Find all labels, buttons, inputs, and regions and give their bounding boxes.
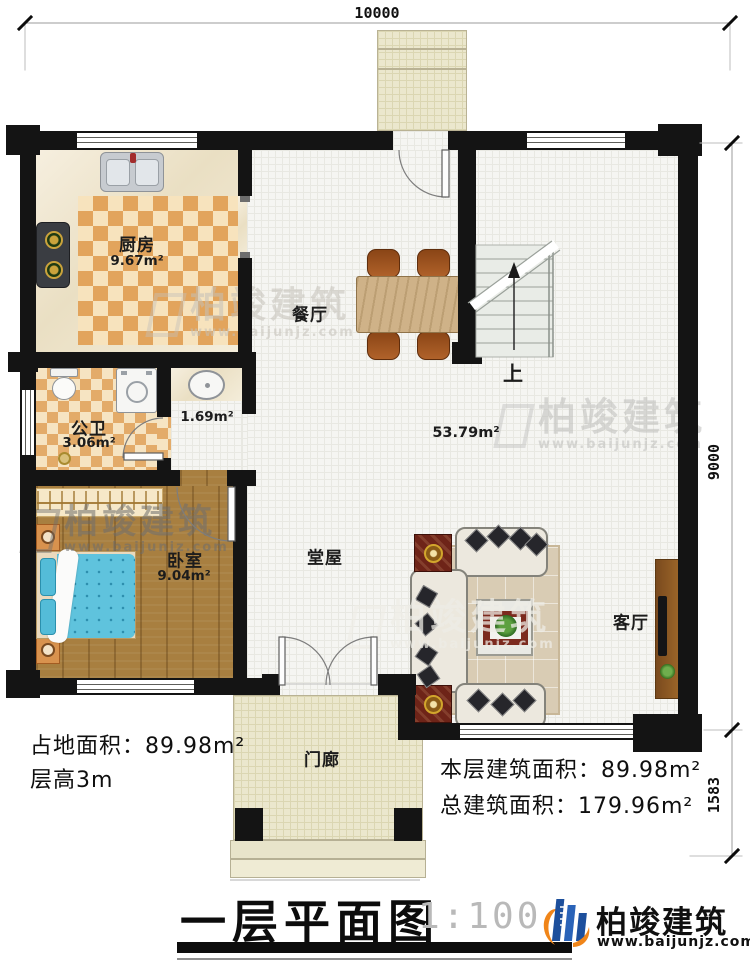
bedroom-area: 9.04m² — [157, 568, 210, 584]
site-area-note: 占地面积：89.98m² — [30, 728, 245, 760]
porch-label: 门廊 — [304, 746, 340, 771]
floor-plan-canvas: 10000 9000 1583 — [0, 0, 750, 967]
bathroom-area: 3.06m² — [62, 435, 115, 451]
kitchen-area: 9.67m² — [110, 253, 163, 269]
dimension-right-main-label: 9000 — [705, 444, 723, 480]
total-area-note: 总建筑面积：179.96m² — [440, 788, 693, 820]
title-underline-thick — [177, 942, 572, 953]
vanity-area: 1.69m² — [180, 409, 233, 425]
drawing-scale: 1:100 — [418, 896, 541, 937]
floor-height-note: 层高3m — [30, 762, 113, 794]
door-swings — [123, 150, 449, 685]
living-label: 客厅 — [613, 609, 649, 634]
linework-layer — [0, 0, 750, 967]
staircase — [468, 241, 560, 357]
title-top-rule — [230, 879, 420, 881]
brand-website: www.baijunjz.com — [597, 934, 750, 950]
hall-label: 堂屋 — [307, 544, 343, 569]
kitchen-label: 厨房 — [119, 231, 155, 256]
floor-area-note: 本层建筑面积：89.98m² — [440, 752, 701, 784]
title-underline-thin — [177, 958, 572, 960]
hall-area: 53.79m² — [432, 425, 499, 441]
dining-label: 餐厅 — [292, 301, 328, 326]
stairs-up-label: 上 — [503, 358, 523, 387]
dimension-right-porch-label: 1583 — [705, 777, 723, 813]
brand-logo-icon — [543, 893, 591, 951]
dimension-top-label: 10000 — [354, 4, 399, 22]
